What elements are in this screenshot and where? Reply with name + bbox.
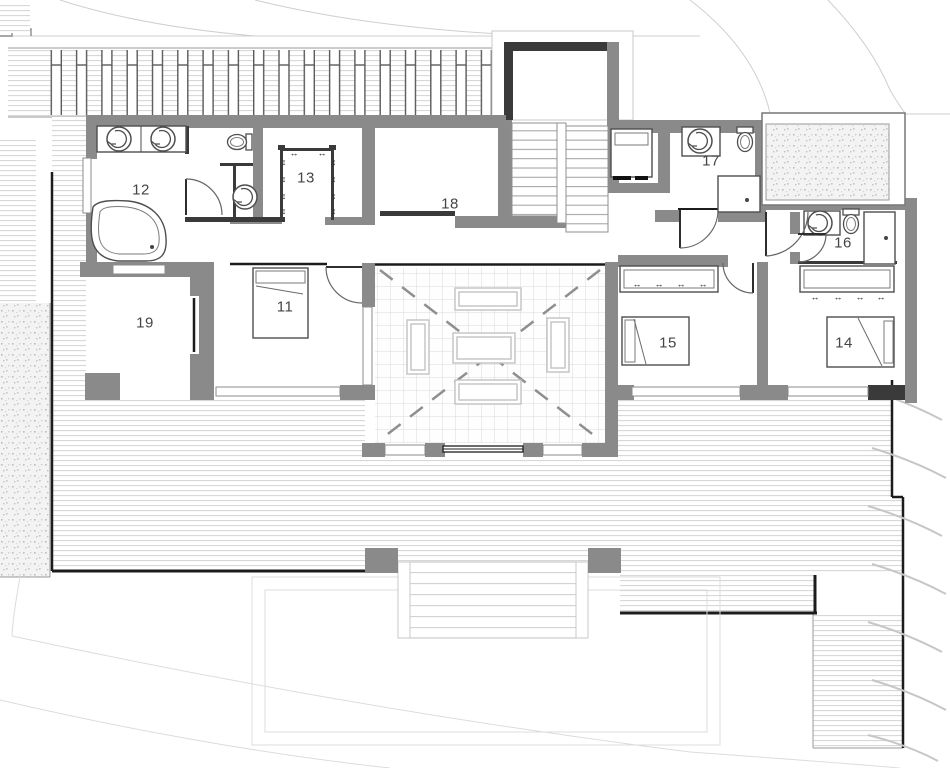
svg-text:↕: ↕ bbox=[332, 206, 337, 216]
room-label-17: 17 bbox=[702, 153, 720, 170]
atrium-void bbox=[375, 268, 605, 443]
svg-text:↔: ↔ bbox=[655, 279, 664, 289]
svg-text:↕: ↕ bbox=[332, 157, 337, 167]
bidet-icon bbox=[233, 185, 257, 209]
svg-text:↔: ↔ bbox=[633, 279, 642, 289]
svg-text:↔: ↔ bbox=[677, 279, 686, 289]
room-label-16: 16 bbox=[834, 235, 852, 252]
cabinet bbox=[611, 129, 652, 177]
floor-plan: ↔ ↔ ↕ ↕ ↕ ↕ ↕ ↕ ↕ ↕ bbox=[0, 0, 950, 768]
toilet-icon bbox=[737, 127, 753, 152]
svg-text:↔: ↔ bbox=[834, 292, 843, 302]
svg-text:↕: ↕ bbox=[332, 174, 337, 184]
room-label-12: 12 bbox=[132, 182, 150, 199]
door-arc bbox=[186, 179, 222, 215]
room-label-19: 19 bbox=[136, 315, 154, 332]
svg-text:↔: ↔ bbox=[856, 292, 865, 302]
svg-text:↔: ↔ bbox=[318, 148, 327, 158]
interior-stairs bbox=[512, 123, 608, 232]
washbasin-icon bbox=[151, 127, 175, 151]
bedroom-15-furniture: ↔ ↔ ↔ ↔ bbox=[620, 263, 753, 365]
svg-text:↕: ↕ bbox=[332, 191, 337, 201]
toilet-icon bbox=[843, 209, 859, 234]
room-label-11: 11 bbox=[277, 299, 294, 316]
svg-text:↕: ↕ bbox=[282, 206, 287, 216]
shower-icon bbox=[718, 176, 760, 212]
shower-icon bbox=[864, 212, 895, 264]
door-arc bbox=[680, 210, 718, 248]
gravel-roof bbox=[762, 113, 905, 205]
room-label-15: 15 bbox=[659, 335, 677, 352]
bedroom-11-furniture bbox=[253, 267, 362, 338]
svg-text:↔: ↔ bbox=[877, 292, 886, 302]
bathroom-17-fixtures bbox=[680, 127, 760, 248]
gravel-strip-west bbox=[0, 303, 50, 577]
toilet-icon bbox=[228, 134, 253, 150]
svg-text:↕: ↕ bbox=[282, 191, 287, 201]
floor-plan-drawing: ↔ ↔ ↕ ↕ ↕ ↕ ↕ ↕ ↕ ↕ bbox=[0, 0, 950, 768]
deck-pier bbox=[588, 548, 621, 573]
room-label-18: 18 bbox=[441, 196, 459, 213]
pergola-slats bbox=[40, 50, 502, 115]
washbasin-icon bbox=[808, 211, 832, 235]
bathroom-16-fixtures bbox=[766, 209, 895, 264]
door-arc bbox=[723, 263, 753, 293]
storage-room-fixtures bbox=[611, 129, 652, 180]
bed bbox=[622, 317, 689, 365]
bedroom-14-furniture: ↔ ↔ ↔ ↔ bbox=[800, 266, 894, 367]
room-label-13: 13 bbox=[297, 170, 315, 187]
bathroom-12-fixtures bbox=[91, 126, 257, 261]
door-arc bbox=[326, 267, 362, 303]
door-arc bbox=[798, 234, 826, 262]
exterior-stairs bbox=[365, 548, 621, 638]
svg-text:↕: ↕ bbox=[282, 157, 287, 167]
washbasin-icon bbox=[688, 129, 712, 153]
svg-text:↔: ↔ bbox=[290, 148, 299, 158]
washbasin-icon bbox=[107, 127, 131, 151]
svg-text:↕: ↕ bbox=[282, 174, 287, 184]
svg-text:↔: ↔ bbox=[811, 292, 820, 302]
deck-pier bbox=[365, 548, 398, 573]
room-label-14: 14 bbox=[835, 335, 853, 352]
svg-text:↔: ↔ bbox=[699, 279, 708, 289]
